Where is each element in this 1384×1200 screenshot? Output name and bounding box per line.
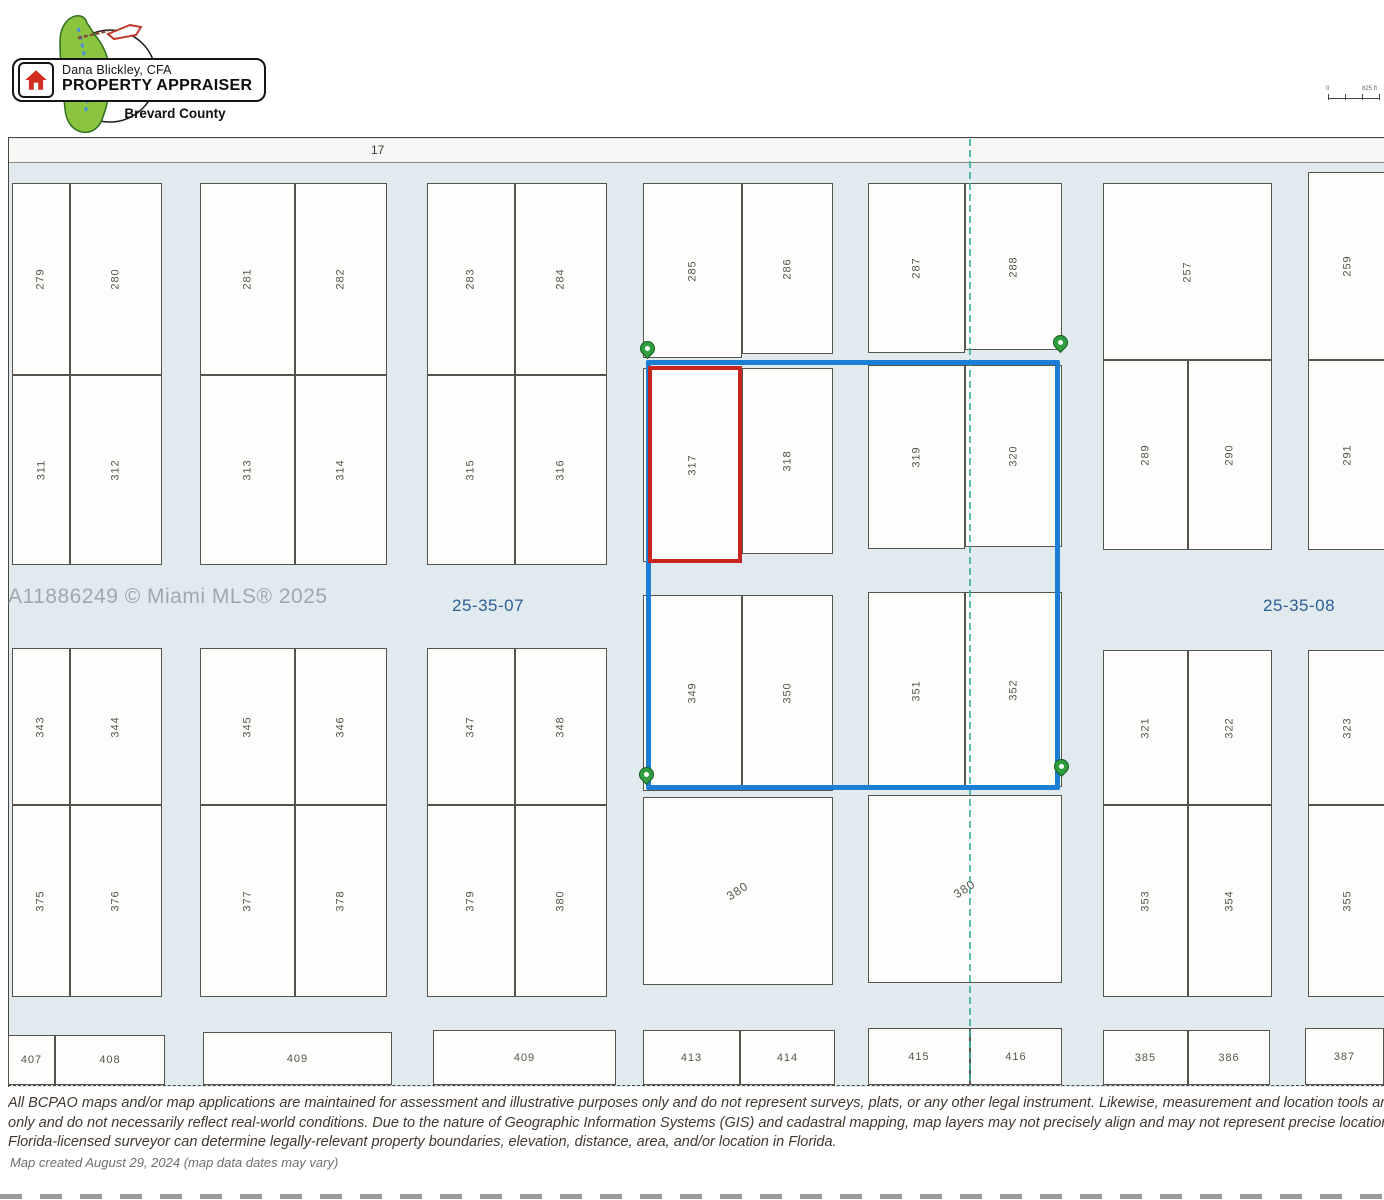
scale-tick bbox=[1379, 94, 1380, 100]
scale-tick bbox=[1328, 94, 1329, 100]
parcel-348: 348 bbox=[515, 648, 607, 805]
parcel-279: 279 bbox=[12, 183, 70, 375]
parcel-409: 409 bbox=[433, 1030, 616, 1085]
parcel-number: 380 bbox=[952, 877, 979, 901]
parcel-290: 290 bbox=[1188, 360, 1272, 550]
parcel-number: 376 bbox=[110, 890, 122, 911]
parcel-number: 408 bbox=[99, 1054, 120, 1066]
parcel-311: 311 bbox=[12, 375, 70, 565]
house-tile bbox=[18, 62, 54, 98]
section-label-25-35-08: 25-35-08 bbox=[1263, 596, 1335, 616]
county-name: Brevard County bbox=[90, 106, 260, 121]
mls-watermark: A11886249 © Miami MLS® 2025 bbox=[8, 585, 328, 609]
map-bottom-border bbox=[8, 1085, 1384, 1086]
scale-tick bbox=[1345, 94, 1346, 100]
parcel-number: 409 bbox=[514, 1052, 535, 1064]
parcel-283: 283 bbox=[427, 183, 515, 375]
parcel-345: 345 bbox=[200, 648, 295, 805]
parcel-number: 409 bbox=[287, 1053, 308, 1065]
bcpao-map-page: Dana Blickley, CFA PROPERTY APPRAISER Br… bbox=[0, 0, 1384, 1200]
highlighted-parcel-317-outline bbox=[648, 366, 742, 563]
parcel-289: 289 bbox=[1103, 360, 1188, 550]
parcel-416: 416 bbox=[970, 1028, 1062, 1085]
parcel-347: 347 bbox=[427, 648, 515, 805]
parcel-number: 345 bbox=[241, 716, 253, 737]
parcel-386: 386 bbox=[1188, 1030, 1270, 1085]
parcel-314: 314 bbox=[295, 375, 387, 565]
disclaimer-line-3: Florida-licensed surveyor can determine … bbox=[8, 1133, 1384, 1153]
parcel-414: 414 bbox=[740, 1030, 835, 1085]
parcel-415: 415 bbox=[868, 1028, 970, 1085]
appraiser-name: Dana Blickley, CFA bbox=[62, 63, 172, 77]
parcel-number: 380 bbox=[555, 890, 567, 911]
parcel-number: 322 bbox=[1224, 717, 1236, 738]
parcel-number: 311 bbox=[35, 460, 47, 481]
parcel-413: 413 bbox=[643, 1030, 740, 1085]
parcel-number: 290 bbox=[1224, 444, 1236, 465]
parcel-number: 286 bbox=[781, 258, 793, 279]
scale-tick bbox=[1362, 94, 1363, 100]
parcel-353: 353 bbox=[1103, 805, 1188, 997]
parcel-378: 378 bbox=[295, 805, 387, 997]
section-label-25-35-07: 25-35-07 bbox=[452, 596, 524, 616]
parcel-number: 321 bbox=[1139, 717, 1151, 738]
scale-end-label: 825 ft bbox=[1362, 86, 1377, 92]
scan-edge-artifact bbox=[0, 1194, 1384, 1199]
parcel-number: 416 bbox=[1005, 1051, 1026, 1063]
parcel-number: 344 bbox=[110, 716, 122, 737]
parcel-376: 376 bbox=[70, 805, 162, 997]
parcel-number: 385 bbox=[1135, 1052, 1156, 1064]
scale-bar-line bbox=[1328, 98, 1380, 99]
parcel-number: 313 bbox=[241, 459, 253, 480]
parcel-number: 415 bbox=[908, 1051, 929, 1063]
parcel-number: 291 bbox=[1342, 444, 1354, 465]
scale-start-label: 0 bbox=[1326, 86, 1329, 92]
parcel-409: 409 bbox=[203, 1032, 392, 1085]
parcel-281: 281 bbox=[200, 183, 295, 375]
road-17: 17 bbox=[9, 139, 1384, 163]
parcel-257: 257 bbox=[1103, 183, 1272, 360]
disclaimer-text: All BCPAO maps and/or map applications a… bbox=[8, 1094, 1384, 1153]
parcel-316: 316 bbox=[515, 375, 607, 565]
parcel-380: 380 bbox=[868, 795, 1062, 983]
parcel-375: 375 bbox=[12, 805, 70, 997]
parcel-number: 259 bbox=[1342, 255, 1354, 276]
parcel-291: 291 bbox=[1308, 360, 1384, 550]
parcel-number: 279 bbox=[35, 268, 47, 289]
parcel-number: 283 bbox=[465, 268, 477, 289]
parcel-282: 282 bbox=[295, 183, 387, 375]
parcel-315: 315 bbox=[427, 375, 515, 565]
parcel-number: 377 bbox=[241, 890, 253, 911]
disclaimer-line-2: only and do not necessarily reflect real… bbox=[8, 1114, 1384, 1134]
parcel-number: 284 bbox=[555, 268, 567, 289]
parcel-number: 343 bbox=[35, 716, 47, 737]
parcel-288: 288 bbox=[965, 183, 1062, 350]
parcel-number: 355 bbox=[1342, 890, 1354, 911]
scale-bar: 0 825 ft bbox=[1322, 86, 1384, 112]
parcel-355: 355 bbox=[1308, 805, 1384, 997]
parcel-number: 347 bbox=[465, 716, 477, 737]
parcel-323: 323 bbox=[1308, 650, 1384, 805]
parcel-number: 315 bbox=[465, 459, 477, 480]
parcel-number: 387 bbox=[1334, 1051, 1355, 1063]
parcel-number: 282 bbox=[335, 268, 347, 289]
parcel-map: 17 2792802812822832842852862872882572593… bbox=[0, 137, 1384, 1087]
parcel-343: 343 bbox=[12, 648, 70, 805]
parcel-number: 287 bbox=[910, 257, 922, 278]
parcel-280: 280 bbox=[70, 183, 162, 375]
parcel-387: 387 bbox=[1305, 1028, 1384, 1085]
parcel-312: 312 bbox=[70, 375, 162, 565]
parcel-407: 407 bbox=[8, 1035, 55, 1085]
parcel-number: 289 bbox=[1139, 444, 1151, 465]
parcel-number: 323 bbox=[1342, 717, 1354, 738]
property-appraiser-logo: Dana Blickley, CFA PROPERTY APPRAISER Br… bbox=[10, 4, 300, 136]
parcel-287: 287 bbox=[868, 183, 965, 353]
house-icon bbox=[20, 64, 52, 96]
parcel-377: 377 bbox=[200, 805, 295, 997]
parcel-380: 380 bbox=[515, 805, 607, 997]
parcel-number: 288 bbox=[1007, 256, 1019, 277]
parcel-number: 312 bbox=[110, 459, 122, 480]
parcel-number: 353 bbox=[1139, 890, 1151, 911]
parcel-number: 348 bbox=[555, 716, 567, 737]
parcel-313: 313 bbox=[200, 375, 295, 565]
parcel-385: 385 bbox=[1103, 1030, 1188, 1085]
parcel-379: 379 bbox=[427, 805, 515, 997]
parcel-number: 386 bbox=[1218, 1052, 1239, 1064]
rocket-icon bbox=[108, 25, 141, 39]
parcel-380: 380 bbox=[643, 797, 833, 985]
parcel-321: 321 bbox=[1103, 650, 1188, 805]
appraiser-title: PROPERTY APPRAISER bbox=[62, 77, 252, 95]
parcel-number: 285 bbox=[686, 260, 698, 281]
parcel-285: 285 bbox=[643, 183, 742, 358]
parcel-number: 346 bbox=[335, 716, 347, 737]
parcel-number: 354 bbox=[1224, 890, 1236, 911]
parcel-259: 259 bbox=[1308, 172, 1384, 360]
parcel-number: 257 bbox=[1181, 261, 1193, 282]
road-17-label: 17 bbox=[371, 143, 384, 157]
parcel-number: 280 bbox=[110, 268, 122, 289]
parcel-number: 281 bbox=[241, 268, 253, 289]
parcel-346: 346 bbox=[295, 648, 387, 805]
parcel-number: 375 bbox=[35, 890, 47, 911]
parcel-286: 286 bbox=[742, 183, 833, 354]
parcel-number: 414 bbox=[777, 1052, 798, 1064]
parcel-number: 407 bbox=[21, 1054, 42, 1066]
parcel-number: 314 bbox=[335, 459, 347, 480]
parcel-322: 322 bbox=[1188, 650, 1272, 805]
parcel-number: 378 bbox=[335, 890, 347, 911]
parcel-number: 316 bbox=[555, 459, 567, 480]
parcel-354: 354 bbox=[1188, 805, 1272, 997]
parcel-408: 408 bbox=[55, 1035, 165, 1085]
parcel-284: 284 bbox=[515, 183, 607, 375]
map-created-note: Map created August 29, 2024 (map data da… bbox=[10, 1155, 338, 1170]
parcel-number: 413 bbox=[681, 1052, 702, 1064]
parcel-344: 344 bbox=[70, 648, 162, 805]
parcel-number: 379 bbox=[465, 890, 477, 911]
disclaimer-line-1: All BCPAO maps and/or map applications a… bbox=[8, 1094, 1384, 1114]
parcel-number: 380 bbox=[725, 879, 752, 903]
